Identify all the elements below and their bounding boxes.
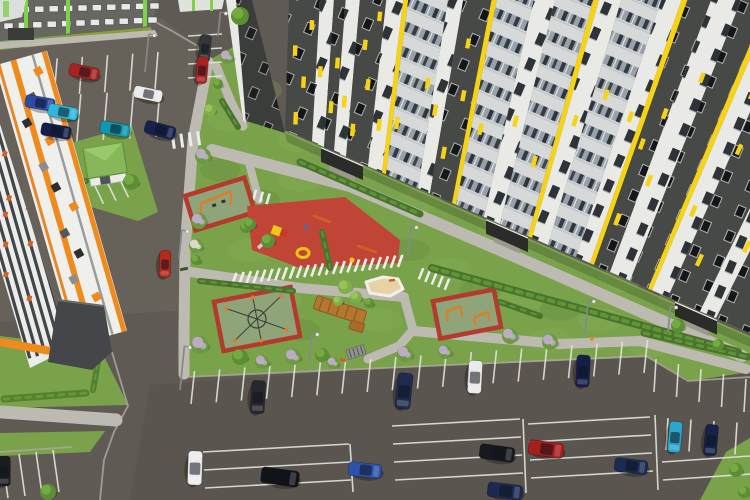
car-hood: [577, 379, 588, 385]
tree-crown: [245, 218, 252, 225]
lamp-head: [316, 333, 320, 337]
tree-crown: [41, 485, 51, 495]
car-cabin: [0, 466, 9, 477]
window: [78, 5, 87, 11]
yellow-accent-panel: [301, 76, 306, 88]
car-cabin: [578, 366, 588, 378]
lamp-head: [153, 34, 157, 38]
car-cabin: [540, 443, 554, 456]
yellow-accent-panel: [293, 112, 298, 125]
window: [107, 4, 116, 10]
tree-crown: [192, 255, 198, 261]
car-hood: [0, 479, 9, 484]
green-accent-stripe: [143, 0, 147, 27]
car-cabin: [253, 391, 264, 403]
utility-kiosk: [83, 143, 128, 187]
tree-bloom: [293, 355, 299, 361]
tree-crown: [316, 349, 325, 358]
tree-crown: [339, 281, 348, 290]
tree-crown: [205, 104, 212, 111]
window: [148, 17, 157, 23]
tree-bloom: [227, 55, 232, 60]
car-cabin: [50, 126, 62, 137]
car-cabin: [189, 462, 200, 475]
green-accent-stripe: [210, 0, 213, 11]
tree-bloom: [196, 244, 201, 249]
window: [90, 19, 99, 25]
yellow-accent-panel: [309, 20, 314, 30]
tree-bloom: [405, 352, 411, 358]
car-cabin: [398, 385, 411, 399]
lamp-head: [592, 300, 596, 304]
tree-crown: [233, 350, 243, 360]
car-cabin: [470, 371, 481, 383]
car-hood: [160, 271, 168, 276]
car-cabin: [273, 470, 288, 484]
car-cabin: [109, 124, 121, 135]
car-hood: [469, 385, 480, 391]
car-cabin: [499, 485, 513, 498]
tree-crown: [214, 79, 220, 85]
walkway: [2, 412, 116, 420]
building-entrance: [8, 28, 34, 40]
car-cabin: [57, 107, 69, 118]
tree-bloom: [199, 219, 205, 225]
car-cabin: [198, 65, 207, 75]
car-cabin: [161, 260, 169, 270]
tree-bloom: [203, 154, 209, 160]
car-hood: [373, 465, 379, 476]
window: [35, 6, 44, 12]
tree-crown: [365, 298, 371, 304]
window: [134, 18, 143, 24]
car-cabin: [670, 432, 680, 444]
tree-bloom: [445, 350, 450, 355]
sandbox: [366, 277, 403, 296]
lamp-head: [415, 226, 419, 230]
car-cabin: [201, 43, 210, 53]
car-cabin: [706, 435, 716, 447]
window: [92, 5, 101, 11]
corner-accent: [3, 1, 9, 17]
yellow-accent-panel: [293, 45, 298, 56]
tree-crown: [124, 175, 134, 185]
window: [76, 20, 85, 26]
yellow-accent-panel: [335, 58, 340, 69]
lamp-head: [674, 306, 678, 310]
car-cabin: [359, 464, 372, 475]
lamp-head: [224, 12, 228, 16]
tree-crown: [351, 291, 358, 298]
tree-bloom: [333, 362, 337, 366]
lamp-head: [188, 346, 192, 350]
car-hood: [705, 448, 715, 454]
car-hood: [189, 477, 200, 483]
car-hood: [252, 405, 263, 411]
tower-end-wall: [48, 300, 112, 370]
tree-bloom: [200, 343, 206, 349]
car-hood: [669, 445, 679, 451]
tree-crown: [334, 296, 340, 302]
car-cabin: [34, 98, 46, 109]
car-cabin: [625, 460, 638, 472]
tree-crown: [713, 339, 720, 346]
yellow-accent-panel: [318, 66, 323, 77]
tree-crown: [672, 320, 681, 329]
window: [33, 22, 42, 28]
lamp-head: [186, 230, 190, 234]
window: [121, 4, 130, 10]
window: [47, 21, 56, 27]
car-hood: [197, 77, 206, 82]
tree-bloom: [550, 340, 556, 346]
aerial-render-screenshot: [0, 0, 750, 500]
residential-complex-aerial-scene: [0, 0, 750, 500]
tree-crown: [739, 486, 746, 493]
green-roof-kiosk: [83, 143, 128, 187]
car-cabin: [491, 447, 505, 460]
window: [105, 19, 114, 25]
play-item: [350, 258, 355, 263]
window: [49, 6, 58, 12]
green-accent-stripe: [66, 0, 70, 34]
tree-crown: [730, 464, 739, 473]
tree-crown: [232, 8, 243, 19]
tree-crown: [262, 235, 271, 244]
yellow-accent-panel: [328, 101, 333, 113]
window: [119, 18, 128, 24]
tree-bloom: [510, 334, 516, 340]
hydrant-marker: [590, 337, 594, 341]
car: [0, 456, 10, 489]
window: [150, 3, 159, 9]
tree-bloom: [262, 360, 267, 365]
green-accent-stripe: [192, 0, 195, 11]
play-item: [304, 225, 308, 229]
